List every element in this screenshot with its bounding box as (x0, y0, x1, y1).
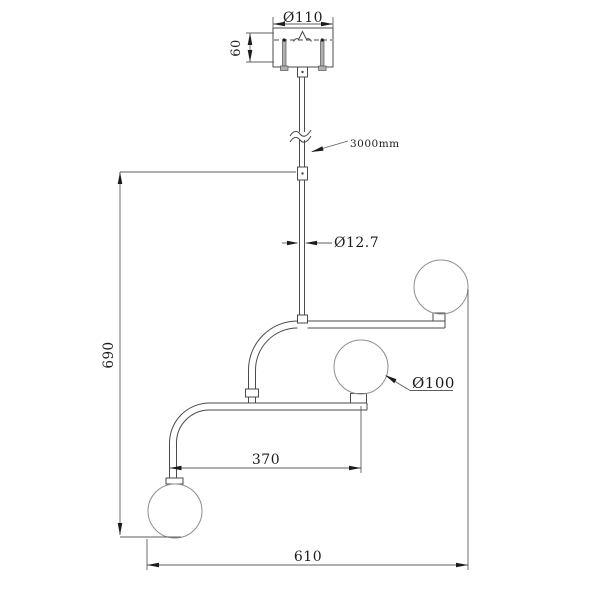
dim-arm-spacing: 370 (170, 406, 362, 473)
arrow-up-icon (248, 33, 253, 45)
dim-canopy-diameter: Ø110 (273, 10, 333, 28)
ceiling-canopy (273, 28, 333, 77)
dim-overall-width: 610 (147, 289, 468, 570)
globe-top-right (414, 260, 468, 314)
label-overall-drop: 690 (101, 341, 117, 368)
leader-arrow-icon (311, 146, 324, 152)
dim-overall-drop: 690 (101, 172, 296, 537)
technical-drawing-canvas: Ø110 60 3000mm Ø12.7 Ø100 690 (0, 0, 600, 600)
arm-joint (298, 315, 308, 323)
mounting-bolt-left (281, 38, 289, 70)
globe-collar-bottom-left (166, 478, 183, 484)
dim-rod-diameter: Ø12.7 (282, 235, 379, 251)
globe-middle (334, 340, 388, 394)
label-rod-diameter: Ø12.7 (334, 235, 379, 251)
pendant-lamp-drawing: Ø110 60 3000mm Ø12.7 Ø100 690 (0, 0, 600, 600)
mounting-bolt-right (319, 38, 327, 70)
arm-sleeve-joint (246, 389, 259, 397)
globe-collar-middle (351, 394, 367, 404)
upper-arm (308, 313, 446, 328)
arrow-up-icon (118, 172, 123, 184)
label-overall-width: 610 (294, 549, 322, 565)
arrow-right-icon (349, 466, 361, 471)
arrow-down-icon (248, 50, 253, 62)
leader-globe-diameter: Ø100 (385, 374, 455, 392)
label-globe-diameter: Ø100 (412, 374, 455, 392)
label-arm-spacing: 370 (252, 452, 280, 468)
lower-arm (166, 394, 367, 485)
arrow-right-icon (287, 241, 299, 246)
dim-canopy-height: 60 (229, 33, 274, 62)
globe-bottom-left (148, 484, 202, 538)
rod-connector-dot (301, 172, 303, 174)
suspension-rod (290, 77, 311, 315)
leader-arrow-icon (385, 375, 397, 383)
arrow-right-icon (456, 563, 468, 568)
arrow-left-icon (170, 466, 182, 471)
label-canopy-height: 60 (229, 39, 244, 57)
arrow-left-icon (147, 563, 159, 568)
leader-suspension-length: 3000mm (311, 138, 400, 152)
coupler-screw-dot (301, 71, 303, 73)
arrow-down-icon (118, 523, 123, 535)
rod-break-symbol (290, 130, 311, 142)
curved-arm-upper (246, 321, 298, 403)
arrow-left-icon (306, 241, 318, 246)
label-canopy-diameter: Ø110 (283, 10, 323, 26)
label-suspension-length: 3000mm (350, 138, 400, 150)
